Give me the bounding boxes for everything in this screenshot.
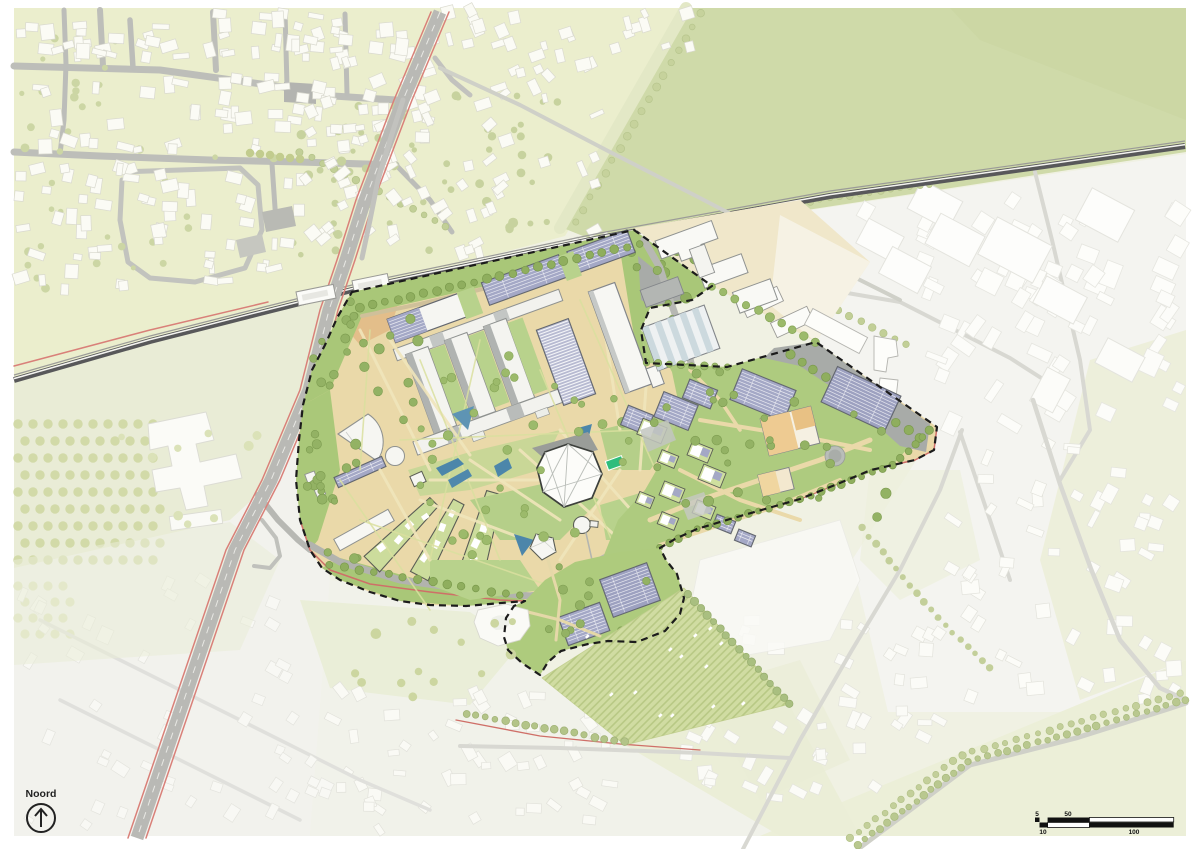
svg-text:10: 10 (1039, 829, 1047, 836)
svg-text:50: 50 (1064, 811, 1072, 818)
svg-text:100: 100 (1129, 829, 1140, 836)
svg-text:5: 5 (1035, 811, 1039, 818)
svg-text:Noord: Noord (26, 788, 57, 800)
